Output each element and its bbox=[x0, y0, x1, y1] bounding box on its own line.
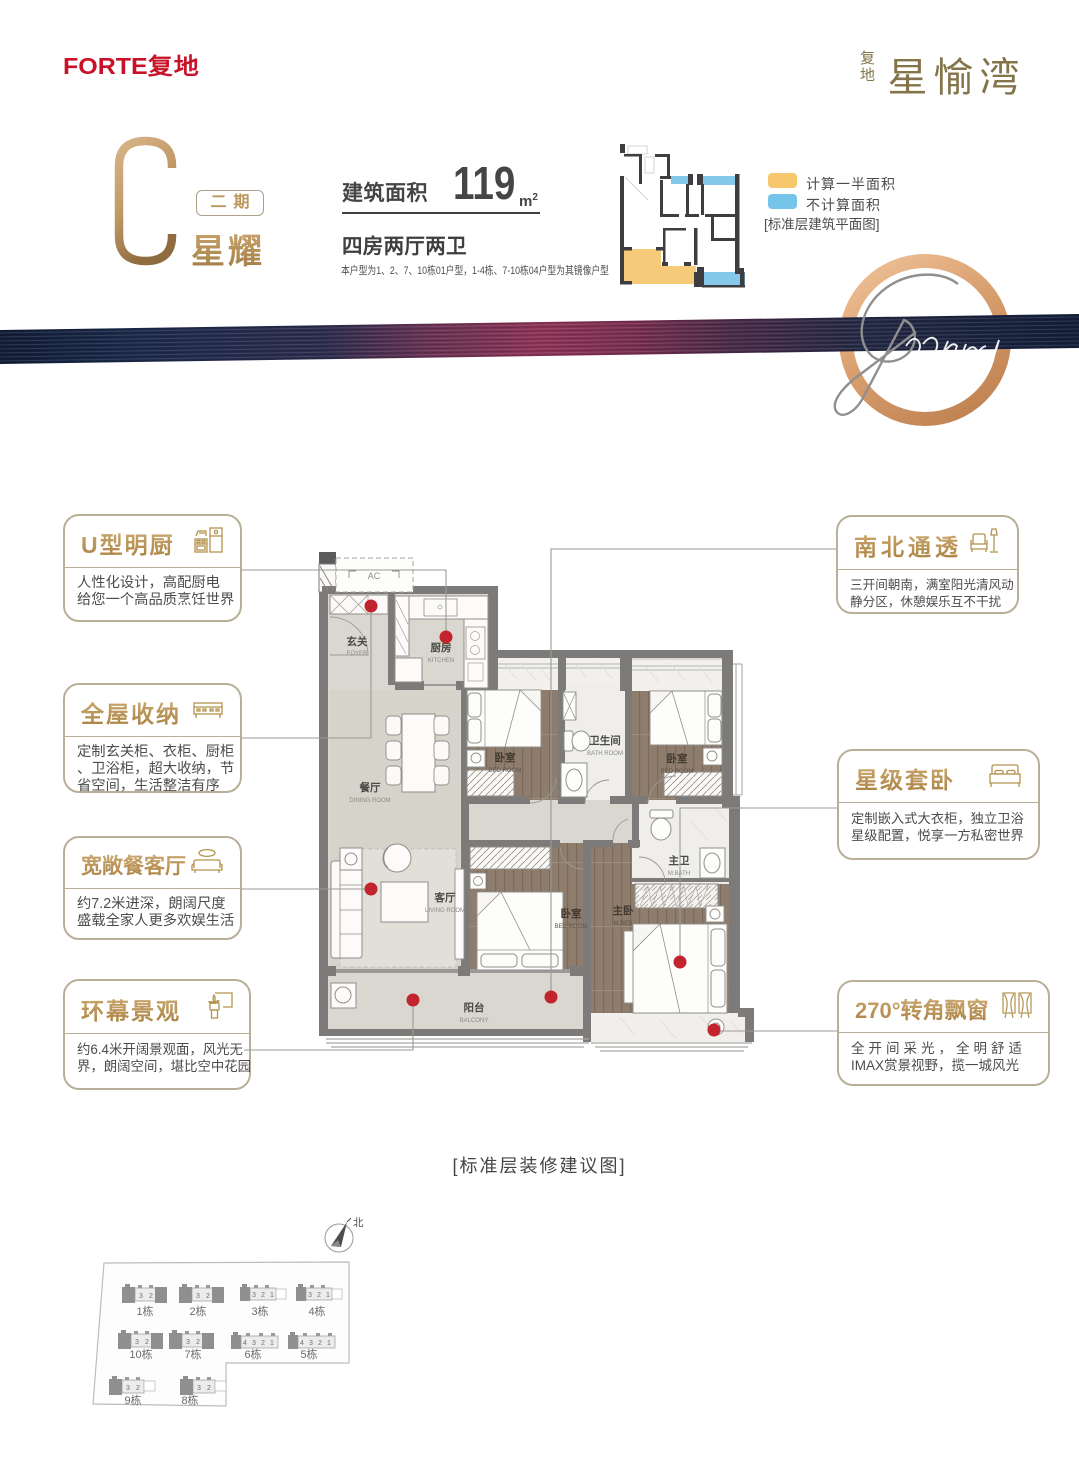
svg-text:2: 2 bbox=[136, 1385, 140, 1392]
svg-text:10栋: 10栋 bbox=[129, 1347, 152, 1361]
svg-text:2: 2 bbox=[318, 1340, 322, 1347]
svg-text:6栋: 6栋 bbox=[244, 1347, 261, 1361]
svg-text:3: 3 bbox=[252, 1340, 256, 1347]
svg-text:3: 3 bbox=[139, 1293, 143, 1300]
svg-text:4: 4 bbox=[243, 1340, 247, 1347]
svg-text:2: 2 bbox=[317, 1292, 321, 1299]
svg-text:7栋: 7栋 bbox=[184, 1347, 201, 1361]
svg-text:4: 4 bbox=[300, 1340, 304, 1347]
svg-text:5栋: 5栋 bbox=[300, 1347, 317, 1361]
svg-text:1: 1 bbox=[270, 1340, 274, 1347]
svg-text:1: 1 bbox=[327, 1340, 331, 1347]
svg-text:2: 2 bbox=[196, 1339, 200, 1346]
svg-text:2: 2 bbox=[149, 1293, 153, 1300]
svg-text:3: 3 bbox=[126, 1385, 130, 1392]
svg-text:3: 3 bbox=[252, 1292, 256, 1299]
svg-text:2栋: 2栋 bbox=[189, 1304, 206, 1318]
svg-text:2: 2 bbox=[261, 1292, 265, 1299]
svg-text:2: 2 bbox=[261, 1340, 265, 1347]
svg-text:3: 3 bbox=[309, 1340, 313, 1347]
svg-text:4栋: 4栋 bbox=[308, 1304, 325, 1318]
svg-text:2: 2 bbox=[207, 1385, 211, 1392]
svg-text:2: 2 bbox=[206, 1293, 210, 1300]
svg-text:1栋: 1栋 bbox=[136, 1304, 153, 1318]
svg-text:3: 3 bbox=[308, 1292, 312, 1299]
svg-text:2: 2 bbox=[145, 1339, 149, 1346]
svg-text:1: 1 bbox=[326, 1292, 330, 1299]
svg-text:1: 1 bbox=[270, 1292, 274, 1299]
svg-text:3: 3 bbox=[197, 1385, 201, 1392]
svg-text:3栋: 3栋 bbox=[251, 1304, 268, 1318]
svg-text:3: 3 bbox=[186, 1339, 190, 1346]
svg-text:8栋: 8栋 bbox=[181, 1393, 198, 1407]
svg-text:3: 3 bbox=[135, 1339, 139, 1346]
svg-text:9栋: 9栋 bbox=[124, 1393, 141, 1407]
svg-text:北: 北 bbox=[353, 1217, 364, 1229]
svg-text:3: 3 bbox=[196, 1293, 200, 1300]
